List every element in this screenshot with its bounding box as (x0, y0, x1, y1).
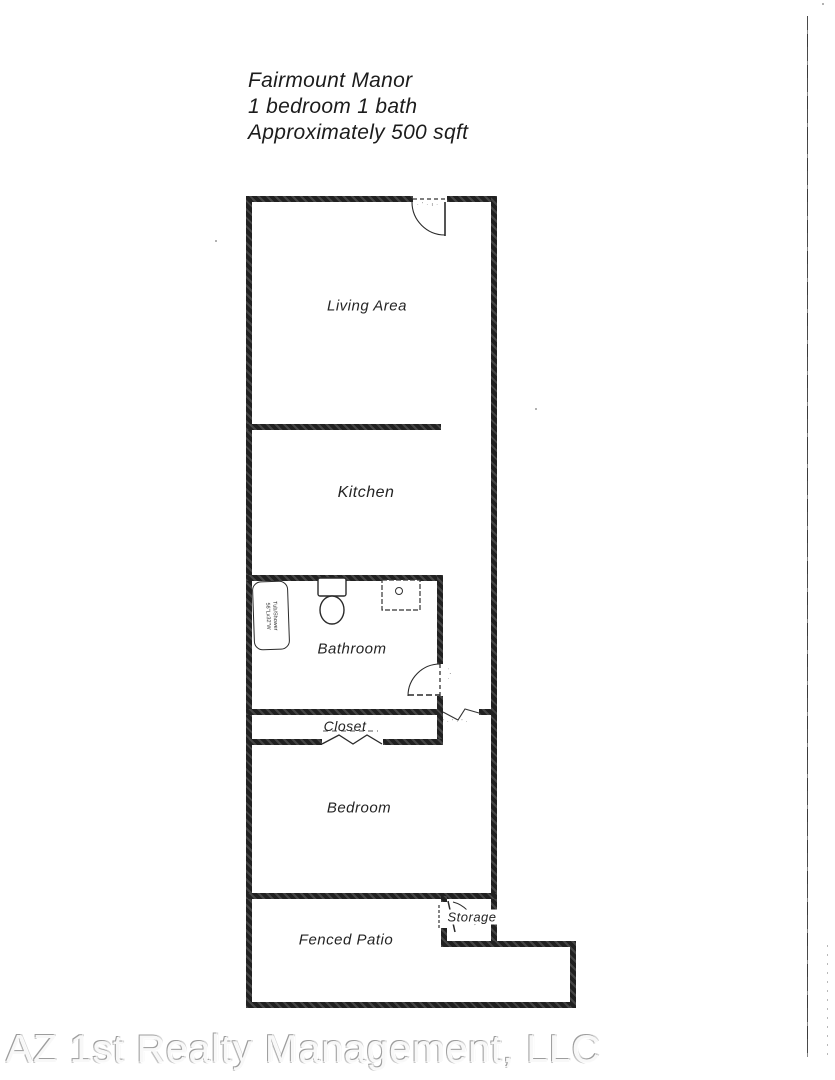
plan-title: Fairmount Manor 1 bedroom 1 bath Approxi… (248, 68, 468, 146)
room-label-fenced-patio: Fenced Patio (299, 932, 393, 949)
room-label-closet: Closet (324, 718, 367, 734)
entry-door-size-marks: · ' · ı · (417, 202, 439, 208)
room-label-kitchen: Kitchen (338, 484, 395, 502)
wall-patio-extension-right (570, 941, 576, 1008)
wall-storage-left-lower (441, 928, 447, 947)
scan-speck (822, 3, 824, 5)
plan-title-name: Fairmount Manor (248, 68, 468, 94)
wall-hallway-stub (479, 709, 491, 715)
scan-speck (215, 240, 217, 242)
wall-closet-bottom-right (383, 739, 443, 745)
wall-exterior-left (246, 196, 252, 1008)
scanned-floorplan-page: { "title": { "line1": "Fairmount Manor",… (0, 0, 835, 1080)
wall-bathroom-right-upper (437, 575, 443, 664)
bathroom-door-swing-arc (408, 664, 440, 696)
sink-drain-icon (396, 588, 403, 595)
room-label-living-area: Living Area (327, 298, 407, 315)
room-label-bedroom: Bedroom (327, 800, 391, 817)
wall-exterior-right (491, 196, 497, 947)
bathroom-door-size-marks: · ' · (445, 668, 451, 680)
tub-shower-size-label: Tub/Shower 56"Lx32"W (263, 601, 278, 631)
wall-living-kitchen-divider (246, 424, 441, 430)
wall-top-left-of-entry (246, 196, 413, 202)
floorplan-linework (0, 0, 835, 1080)
vanity-counter-icon (382, 580, 420, 610)
plan-title-sqft: Approximately 500 sqft (248, 120, 468, 146)
room-label-storage: Storage (446, 910, 497, 925)
scan-speck (535, 408, 537, 410)
wall-exterior-bottom (246, 1002, 576, 1008)
wall-closet-top (246, 709, 443, 715)
wall-bedroom-patio-divider (246, 893, 497, 899)
tub-shower-icon: Tub/Shower 56"Lx32"W (252, 580, 290, 650)
hall-opening-size-marks: ·' · ' · ' · (440, 719, 468, 725)
wall-storage-left-upper (441, 896, 447, 902)
scan-edge-artifact-line (807, 16, 808, 1057)
room-label-bathroom: Bathroom (317, 641, 386, 658)
wall-storage-bottom-and-patio-extension (441, 941, 576, 947)
company-watermark: AZ 1st Realty Management, LLC (6, 1028, 601, 1072)
scan-dotted-artifact (827, 945, 828, 1057)
toilet-bowl-icon (320, 596, 344, 624)
plan-title-bedbath: 1 bedroom 1 bath (248, 94, 468, 120)
closet-bifold-door-zigzag (322, 735, 382, 744)
wall-top-right-of-entry (447, 196, 497, 202)
wall-closet-bottom-left (246, 739, 322, 745)
